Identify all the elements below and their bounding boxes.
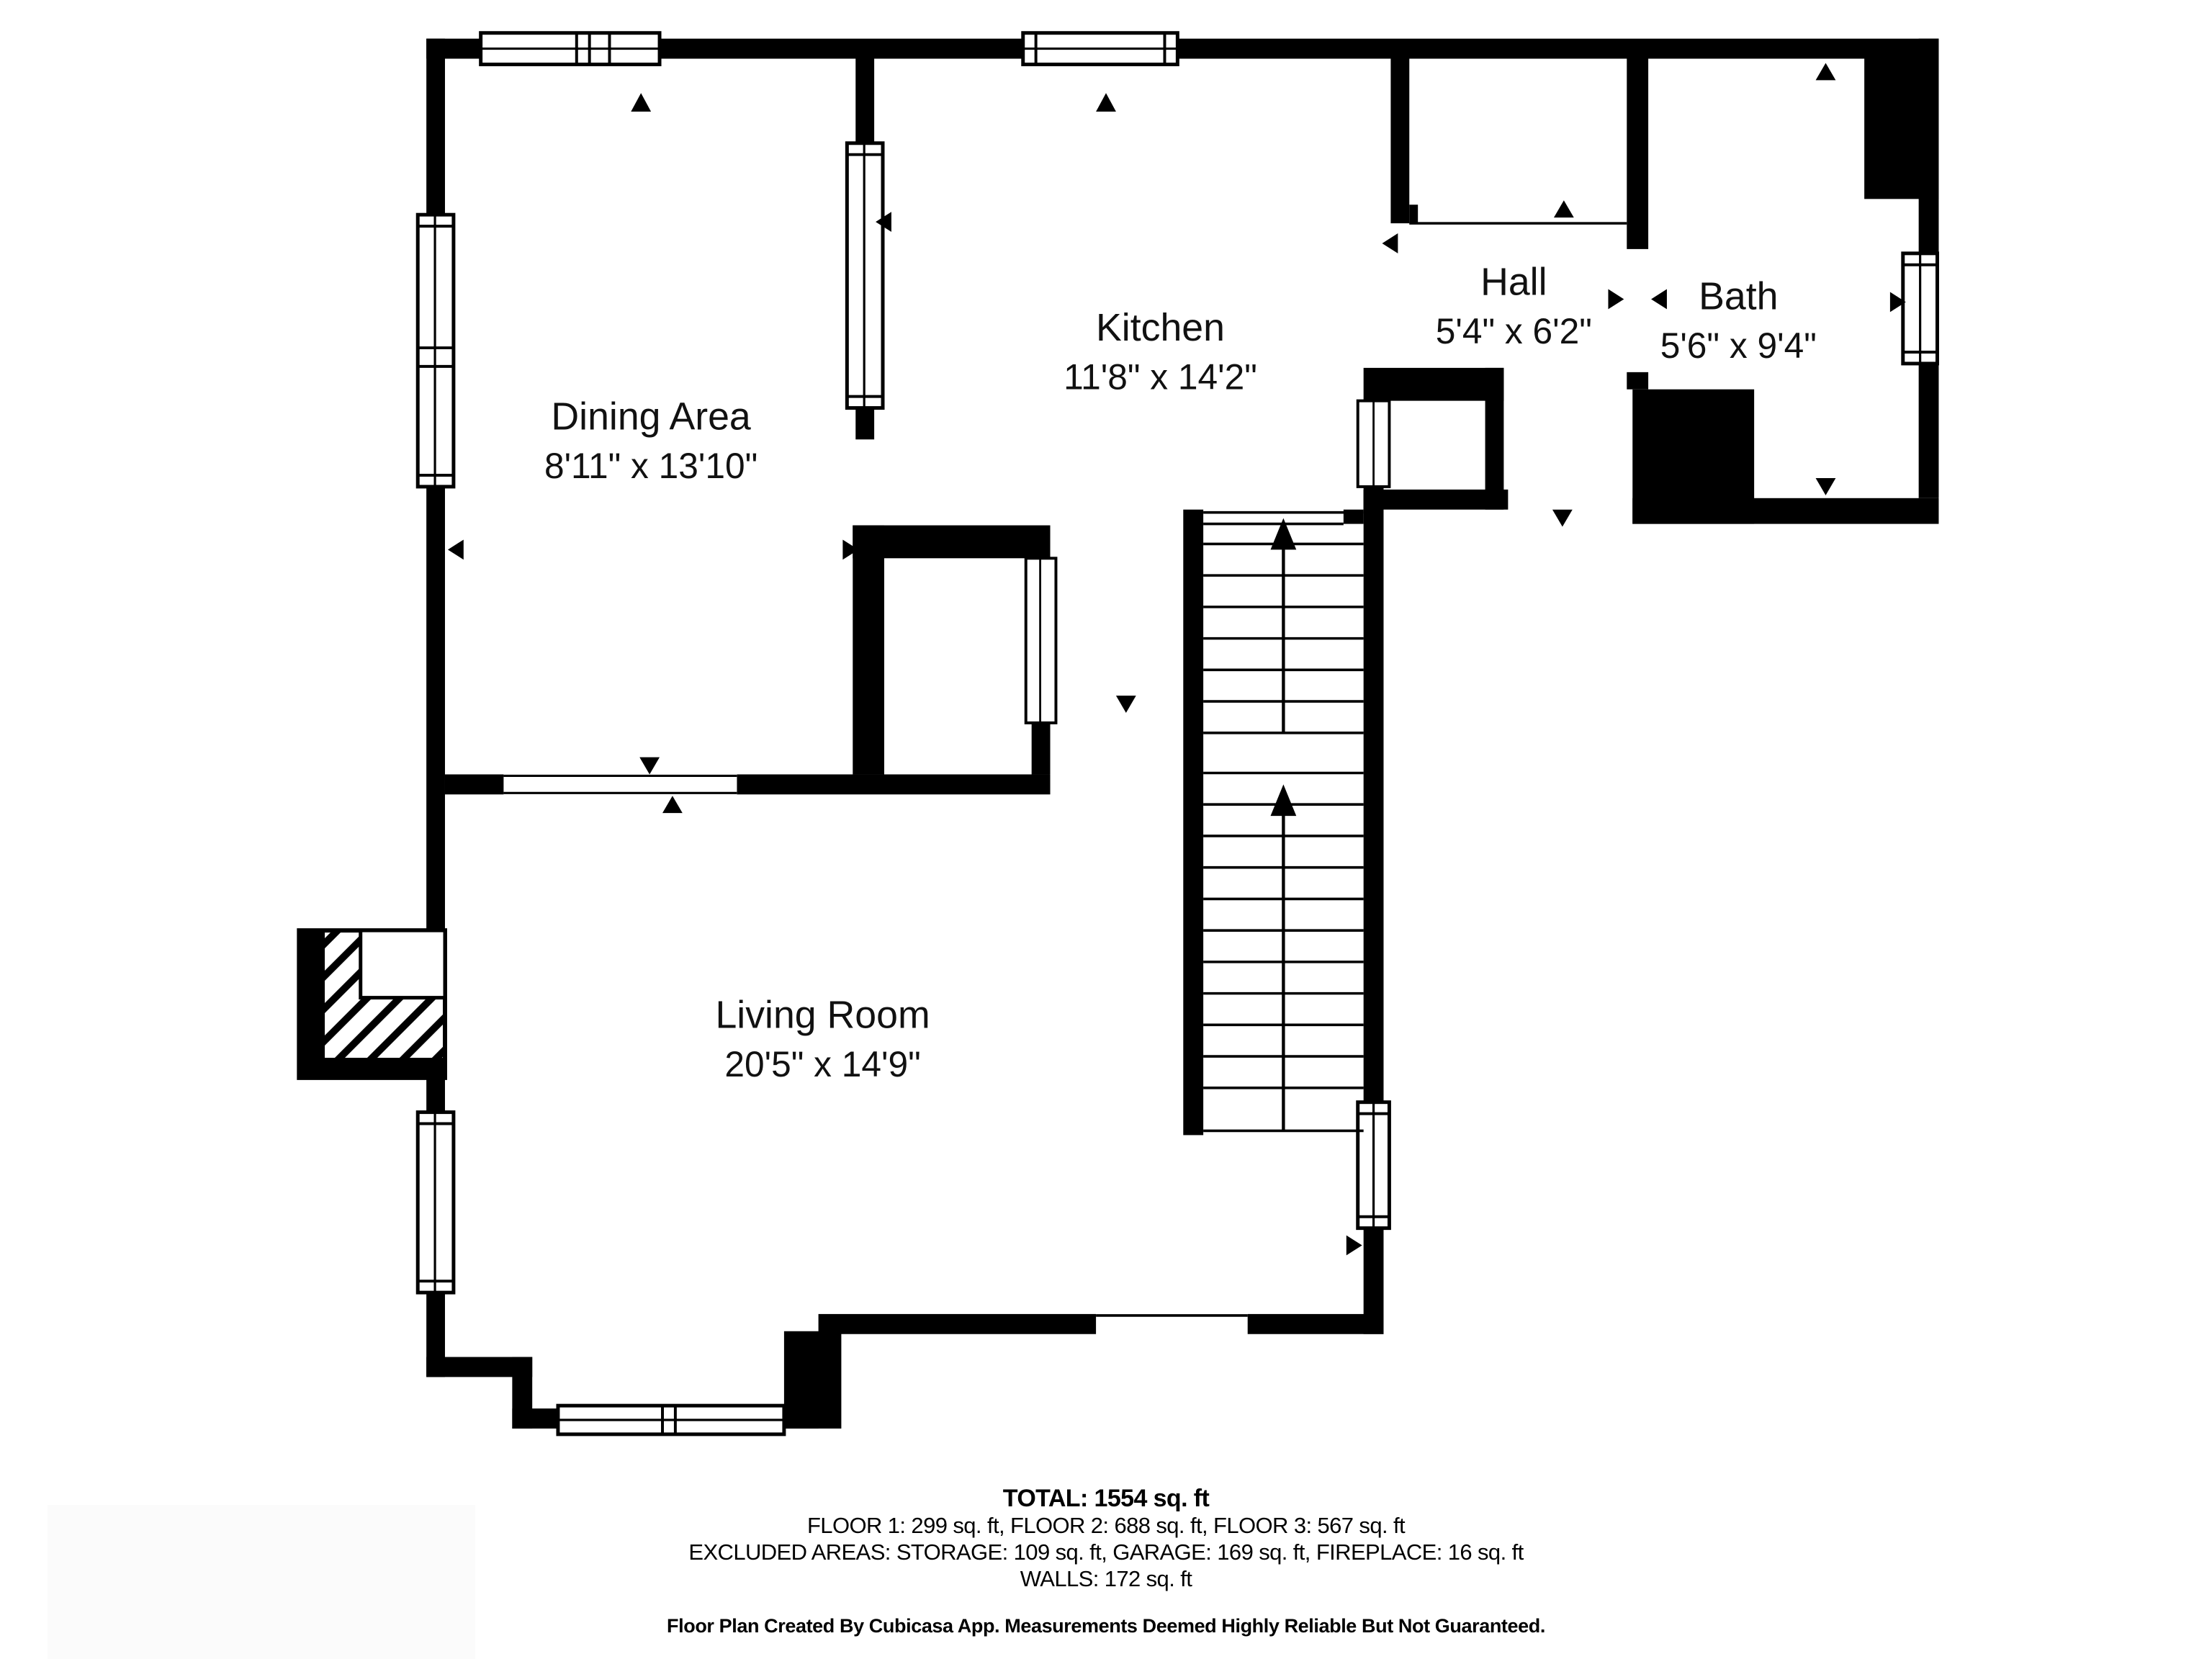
door-arrow-icon-up-bath bbox=[1816, 63, 1836, 80]
wall-closet1-right-low bbox=[1032, 723, 1051, 775]
summary-walls: WALLS: 172 sq. ft bbox=[0, 1565, 2212, 1592]
wall-right-living-lower bbox=[1364, 1228, 1384, 1334]
wall-closet1-left bbox=[853, 526, 884, 775]
wall-right-living-upper bbox=[1364, 490, 1384, 1102]
door-arrow-icon-left-dining-wall bbox=[448, 539, 464, 559]
wall-closet2-top bbox=[1364, 368, 1504, 401]
door-arrow-icon-left-hall-entry bbox=[1382, 233, 1398, 253]
wall-right-outer-bottom bbox=[1919, 364, 1939, 498]
wall-left-below-fireplace bbox=[426, 1078, 445, 1115]
room-labels: Dining Area 8'11" x 13'10" Kitchen 11'8"… bbox=[544, 261, 1817, 1084]
summary-excluded: EXCLUDED AREAS: STORAGE: 109 sq. ft, GAR… bbox=[0, 1539, 2212, 1565]
door-arrow-icon-down-kitchen-passage bbox=[1116, 696, 1136, 713]
windows bbox=[418, 33, 1937, 1434]
area-summary: TOTAL: 1554 sq. ft FLOOR 1: 299 sq. ft, … bbox=[0, 1485, 2212, 1592]
door-arrow-icon-right-hall-bath bbox=[1608, 289, 1624, 310]
window-icon-living-left bbox=[418, 1112, 454, 1292]
wall-closet2-bottom bbox=[1364, 490, 1509, 510]
summary-floors: FLOOR 1: 299 sq. ft, FLOOR 2: 688 sq. ft… bbox=[0, 1512, 2212, 1539]
window-icon-divider bbox=[847, 143, 883, 408]
fireplace bbox=[299, 930, 445, 1078]
window-icon-living-right bbox=[1358, 1102, 1390, 1228]
room-dims-dining-area: 8'11" x 13'10" bbox=[544, 446, 757, 486]
door-arrow-icon-down-bath bbox=[1816, 478, 1836, 495]
floor-plan: Dining Area 8'11" x 13'10" Kitchen 11'8"… bbox=[0, 0, 2212, 1659]
room-dims-kitchen: 11'8" x 14'2" bbox=[1064, 357, 1257, 397]
wall-bath-bottom bbox=[1632, 498, 1938, 524]
wall-closet2-right bbox=[1485, 368, 1504, 510]
wall-bay-corner-right bbox=[784, 1331, 841, 1429]
window-icon-dining-top bbox=[481, 33, 660, 65]
summary-total: TOTAL: 1554 sq. ft bbox=[0, 1485, 2212, 1512]
staircase bbox=[1203, 518, 1364, 1131]
window-icon-dining-left bbox=[418, 215, 454, 487]
door-arrows bbox=[448, 63, 1906, 1255]
room-dims-living-room: 20'5" x 14'9" bbox=[724, 1044, 920, 1084]
window-icon-closet1-right bbox=[1026, 558, 1056, 723]
door-arrow-icon-left-hall-bath bbox=[1651, 289, 1667, 310]
room-dims-bath: 5'6" x 9'4" bbox=[1660, 325, 1817, 366]
window-icon-bath-right bbox=[1903, 253, 1938, 364]
wall-left-mid bbox=[426, 487, 445, 930]
door-arrow-icon-right-living-window bbox=[1346, 1236, 1362, 1256]
wall-hall-bath-divider-top bbox=[1627, 59, 1648, 249]
room-label-kitchen: Kitchen bbox=[1096, 306, 1225, 349]
door-arrow-icon-up-dining-window bbox=[631, 93, 651, 112]
fireplace-firebox bbox=[361, 930, 445, 997]
wall-left-upper bbox=[426, 39, 445, 215]
door-arrow-icon-up-kitchen-window bbox=[1096, 93, 1116, 112]
window-icon-closet2-left bbox=[1358, 401, 1390, 487]
wall-divider-mid bbox=[855, 408, 874, 440]
window-icon-bay-bottom bbox=[558, 1406, 784, 1434]
wall-kitchen-hall-divider bbox=[1390, 59, 1409, 224]
door-arrow-icon-up-hall bbox=[1554, 200, 1574, 217]
wall-hall-bath-divider-low bbox=[1627, 372, 1648, 390]
wall-bottom-right-2 bbox=[1248, 1314, 1384, 1334]
wall-bottom-right-1 bbox=[819, 1314, 1096, 1334]
window-icon-kitchen-top bbox=[1023, 33, 1178, 65]
room-dims-hall: 5'4" x 6'2" bbox=[1436, 311, 1592, 351]
wall-divider-top bbox=[855, 59, 874, 143]
wall-kitchen-bottom-a bbox=[445, 774, 503, 794]
room-label-bath: Bath bbox=[1699, 274, 1778, 318]
room-label-living-room: Living Room bbox=[715, 993, 930, 1036]
footer-disclaimer: Floor Plan Created By Cubicasa App. Meas… bbox=[0, 1615, 2212, 1637]
opening-dining-bottom bbox=[503, 774, 737, 794]
door-arrow-icon-down-dining-opening bbox=[639, 757, 660, 775]
wall-right-outer-top bbox=[1919, 39, 1939, 253]
fireplace-bottom-band bbox=[299, 1058, 445, 1078]
stairs-up-arrow-icon bbox=[1271, 784, 1297, 816]
room-label-hall: Hall bbox=[1480, 261, 1547, 304]
walls bbox=[426, 39, 1938, 1429]
wall-closet1-top bbox=[853, 526, 1050, 559]
door-arrow-icon-up-dining-opening bbox=[662, 796, 683, 813]
wall-kitchen-hall-nub bbox=[1409, 204, 1418, 223]
wall-kitchen-bottom-b bbox=[737, 774, 1050, 794]
fireplace-left-band bbox=[299, 930, 325, 1078]
wall-stairs-left bbox=[1183, 510, 1203, 1136]
room-label-dining-area: Dining Area bbox=[551, 395, 750, 438]
door-arrow-icon-down-hall-bottom bbox=[1552, 510, 1573, 527]
